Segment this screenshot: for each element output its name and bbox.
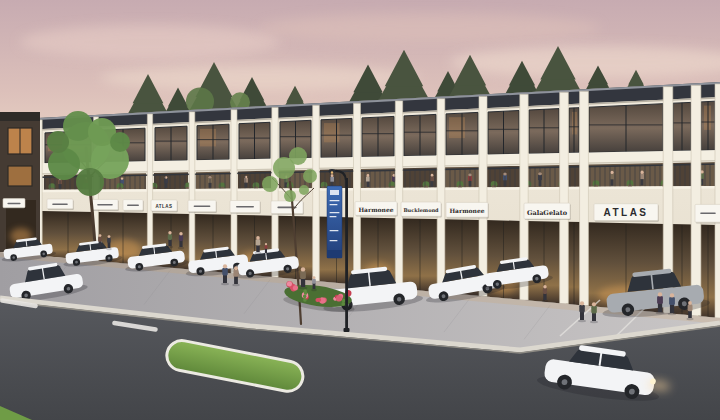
person-torso — [265, 245, 268, 249]
lamp-pole-base — [344, 328, 350, 332]
sign-text-illegible — [700, 212, 716, 214]
person-head — [543, 285, 546, 288]
person-head — [658, 292, 662, 296]
accent-mid-window — [8, 166, 32, 186]
storefront-sign: ATLAS — [151, 200, 178, 212]
storefront-sign: ATLAS — [594, 204, 659, 222]
person-shadow — [255, 252, 262, 254]
person-head — [168, 231, 171, 234]
pilaster-column — [479, 97, 487, 297]
person-torso — [179, 235, 183, 241]
tree-canopy — [284, 190, 296, 202]
person-shadow — [299, 287, 308, 289]
person-shadow — [178, 247, 184, 249]
sign-text: Harmonee — [358, 206, 393, 213]
person-shadow — [221, 283, 229, 285]
person-legs — [658, 303, 662, 312]
banner-logo-block — [330, 190, 339, 195]
person-torso — [256, 239, 261, 245]
banner-bottom-band — [327, 250, 342, 258]
person-legs — [367, 181, 370, 187]
pilaster-column — [189, 112, 195, 270]
person-head — [121, 177, 123, 179]
storefront-sign — [188, 200, 217, 213]
lamp-banner — [327, 186, 342, 258]
pilaster-column — [231, 110, 237, 274]
storefront-sign — [92, 199, 119, 211]
person-torso — [669, 297, 675, 305]
person-legs — [431, 181, 434, 187]
upper-window — [589, 104, 663, 153]
person-torso — [233, 270, 238, 277]
sign-text: Bucklemond — [403, 207, 439, 213]
person-legs — [234, 276, 238, 284]
person-torso — [300, 271, 306, 279]
upper-window — [701, 101, 715, 150]
person-legs — [592, 312, 596, 321]
person-torso — [543, 288, 547, 294]
pilaster-column — [313, 105, 320, 281]
person-torso — [657, 296, 663, 304]
person-torso — [312, 279, 316, 284]
person-shadow — [97, 247, 103, 249]
tree-canopy — [289, 147, 307, 165]
tree-canopy — [303, 169, 317, 183]
pilaster-column — [437, 99, 445, 293]
cloud — [260, 14, 600, 42]
person-head — [256, 236, 260, 240]
banner-text-line — [330, 216, 337, 217]
person-shadow — [232, 284, 240, 286]
person-shadow — [656, 312, 665, 314]
person-legs — [611, 179, 614, 186]
person-head — [301, 267, 305, 271]
pilaster-column — [354, 103, 361, 285]
person-shadow — [106, 248, 112, 250]
person-torso — [168, 234, 172, 240]
storefront-sign: Harmonee — [446, 202, 489, 218]
banner-text-line — [330, 230, 339, 231]
scene-canvas: ATLASHarmoneeBucklemondHarmoneeGalaGelat… — [0, 0, 720, 420]
storefront-sign — [695, 204, 720, 223]
person-head — [108, 235, 111, 238]
person-legs — [108, 242, 111, 248]
person-legs — [580, 311, 584, 320]
person-legs — [543, 293, 546, 300]
sign-text-illegible — [236, 206, 254, 208]
person-head — [640, 171, 643, 174]
person-head — [179, 232, 182, 235]
sign-text-illegible — [52, 203, 68, 205]
person-legs — [265, 248, 267, 253]
person-torso — [579, 305, 585, 313]
pilaster-column — [691, 85, 701, 315]
window-interior-light — [449, 117, 465, 138]
storefront-sign — [230, 201, 261, 214]
left-accent-building — [0, 112, 40, 252]
person-shadow — [578, 320, 586, 322]
storefront-sign: Bucklemond — [401, 202, 442, 218]
person-shadow — [264, 253, 268, 255]
person-legs — [256, 245, 259, 252]
banner-text-line — [330, 240, 338, 241]
person-torso — [430, 176, 434, 181]
person-head — [688, 301, 692, 305]
person-head — [592, 302, 596, 306]
person-torso — [640, 173, 644, 179]
cloud — [20, 25, 280, 59]
sign-text: ATLAS — [155, 204, 172, 209]
person-legs — [179, 240, 182, 247]
person-shadow — [311, 289, 317, 291]
person-legs — [688, 310, 692, 318]
upper-window — [321, 118, 352, 157]
person-legs — [223, 274, 227, 283]
pilaster-column — [580, 91, 589, 305]
sign-text-illegible — [194, 205, 211, 207]
upper-window — [488, 111, 519, 155]
tree-canopy — [299, 185, 309, 195]
person-legs — [670, 304, 674, 313]
person-shadow — [542, 300, 548, 302]
person-torso — [610, 174, 614, 180]
person-torso — [688, 304, 693, 311]
person-shadow — [668, 313, 677, 315]
pilaster-column — [560, 92, 569, 304]
storefront — [401, 218, 439, 292]
person-head — [670, 293, 674, 297]
banner-text-line — [330, 212, 340, 213]
sign-text-illegible — [97, 204, 113, 206]
storefront-sign: Harmonee — [355, 202, 398, 217]
person-head — [610, 171, 613, 174]
storefront-sign — [47, 199, 74, 210]
pilaster-column — [147, 114, 152, 266]
tree-canopy — [47, 131, 69, 153]
person-torso — [98, 237, 102, 242]
window-interior-light — [324, 123, 340, 142]
person-head — [99, 234, 102, 237]
person-legs — [301, 278, 305, 287]
sign-text: GalaGelato — [527, 209, 568, 217]
sign-text-illegible — [127, 204, 139, 206]
upper-window — [673, 102, 691, 150]
person-head — [367, 174, 370, 177]
tree-canopy — [48, 148, 80, 180]
upper-window — [404, 114, 436, 156]
banner-text-line — [330, 204, 338, 205]
upper-window — [446, 112, 478, 155]
person-torso — [591, 306, 597, 314]
tree-canopy — [76, 168, 104, 196]
person-legs — [641, 179, 644, 186]
tree-canopy — [262, 176, 278, 192]
window-interior-light — [200, 129, 216, 147]
person-torso — [107, 238, 111, 243]
person-legs — [99, 241, 102, 247]
storefront-sign — [123, 200, 144, 212]
storefront-sign: GalaGelato — [524, 203, 571, 220]
upper-window — [197, 124, 229, 160]
person-legs — [168, 239, 171, 246]
person-legs — [313, 283, 316, 289]
person-head — [580, 301, 584, 305]
upper-window — [362, 116, 394, 157]
person-head — [265, 243, 267, 245]
sign-text-illegible — [7, 203, 20, 205]
upper-window — [529, 109, 559, 154]
person-head — [223, 264, 227, 268]
upper-window — [155, 126, 187, 161]
lamp-pole — [345, 178, 348, 332]
person-shadow — [167, 246, 173, 248]
sign-text: Harmonee — [449, 207, 484, 214]
person-head — [431, 174, 434, 177]
upper-window — [569, 108, 579, 153]
upper-window — [239, 122, 270, 159]
pilaster-column — [715, 84, 720, 318]
tree-canopy — [110, 132, 130, 152]
person-torso — [222, 268, 228, 276]
lamp-light — [331, 171, 333, 173]
sign-text: ATLAS — [603, 207, 648, 218]
storefront-sign — [3, 199, 26, 209]
person-head — [234, 266, 238, 270]
pilaster-column — [395, 101, 402, 289]
accent-building-parapet — [0, 112, 40, 121]
person-head — [313, 276, 316, 279]
person-torso — [330, 177, 334, 182]
person-shadow — [686, 318, 693, 320]
banner-text-line — [330, 200, 340, 201]
person-shadow — [590, 321, 598, 323]
person-head — [331, 174, 334, 177]
person-torso — [366, 177, 370, 182]
architectural-rendering: ATLASHarmoneeBucklemondHarmoneeGalaGelat… — [0, 0, 720, 420]
